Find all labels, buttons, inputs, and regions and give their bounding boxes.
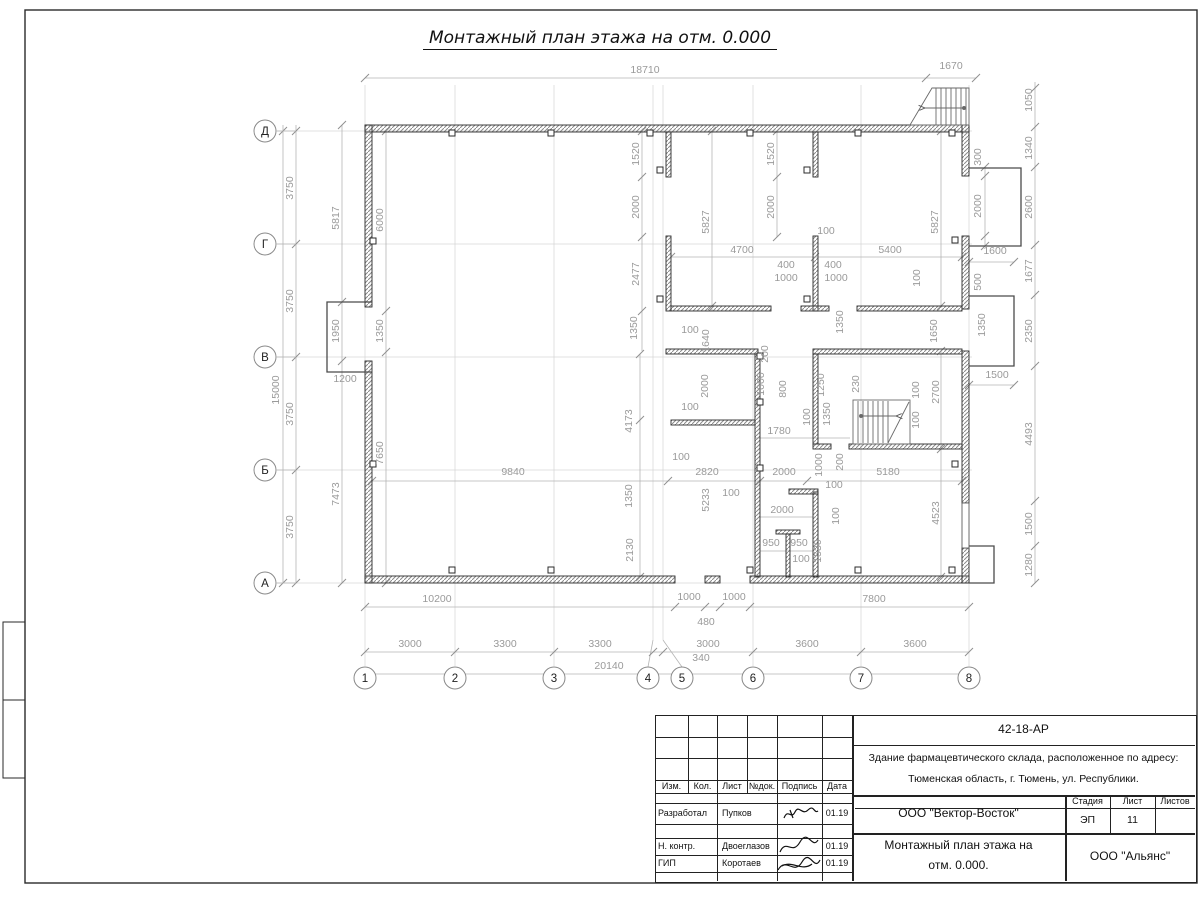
- row-axis-label: Д: [261, 126, 269, 138]
- signature-ncontrol-gip: [772, 836, 824, 880]
- dim-label: 5817: [330, 206, 342, 230]
- customer-company: ООО "Альянс": [1065, 833, 1195, 881]
- row-axis-label: Б: [261, 465, 269, 477]
- dim-label: 100: [681, 401, 699, 413]
- document-code: 42-18-АР: [852, 715, 1195, 745]
- internal-stair: [853, 400, 910, 444]
- dim-label: 480: [697, 616, 715, 628]
- name-gip: Коротаев: [719, 855, 779, 872]
- dim-label: 7650: [374, 441, 386, 465]
- dim-label: 100: [681, 324, 699, 336]
- dim-label: 1000: [677, 591, 701, 603]
- drawing-name-line1: Монтажный план этажа на: [852, 836, 1065, 856]
- role-developer: Разработал: [655, 803, 720, 824]
- dim-label: 2820: [695, 466, 719, 478]
- dim-label: 340: [692, 652, 710, 664]
- drawing-sheet: 1871016701050134026001677235044931500128…: [0, 0, 1200, 900]
- dim-label: 800: [777, 380, 789, 398]
- dim-label: 1000: [824, 272, 848, 284]
- col-header-kol: Кол.: [688, 780, 717, 793]
- dim-label: 100: [825, 479, 843, 491]
- dim-label: 400: [824, 259, 842, 271]
- dim-label: 1350: [374, 319, 386, 343]
- object-description-line2: Тюменская область, г. Тюмень, ул. Респуб…: [852, 768, 1195, 790]
- dim-label: 3300: [588, 638, 612, 650]
- dim-label: 4523: [930, 501, 942, 525]
- date-ncontrol: 01.19: [822, 838, 852, 855]
- dim-label: 5180: [876, 466, 900, 478]
- dim-label: 1500: [985, 369, 1009, 381]
- dim-label: 2700: [930, 380, 942, 404]
- dim-label: 1000: [722, 591, 746, 603]
- row-axis-label: А: [261, 578, 269, 590]
- dim-label: 18710: [630, 64, 659, 76]
- col-header-ndok: №док.: [747, 780, 777, 793]
- date-developer: 01.19: [822, 803, 852, 824]
- col-axis-label: 5: [679, 673, 685, 685]
- dim-label: 1670: [939, 60, 963, 72]
- col-header-data: Дата: [822, 780, 852, 793]
- row-axis-label: Г: [262, 239, 269, 251]
- dim-label: 100: [792, 553, 810, 565]
- dim-label: 950: [790, 537, 808, 549]
- col-axis-label: 2: [452, 673, 458, 685]
- stage-label: Стадия: [1065, 795, 1110, 808]
- dim-label: 3600: [795, 638, 819, 650]
- dim-label: 1340: [1023, 136, 1035, 160]
- dim-label: 950: [762, 537, 780, 549]
- dim-label: 2000: [770, 504, 794, 516]
- dim-label: 100: [722, 487, 740, 499]
- dim-label: 1200: [333, 373, 357, 385]
- dim-label: 1520: [765, 142, 777, 166]
- dim-label: 3750: [284, 176, 296, 200]
- sheets-value: [1155, 808, 1195, 833]
- external-stair: [910, 88, 969, 125]
- sheets-label: Листов: [1155, 795, 1195, 808]
- dim-label: 100: [672, 451, 690, 463]
- dim-label: 1600: [983, 245, 1007, 257]
- dim-label: 1350: [623, 484, 635, 508]
- dim-label: 2000: [772, 466, 796, 478]
- dim-label: 20140: [594, 660, 623, 672]
- role-gip: ГИП: [655, 855, 720, 872]
- col-axis-label: 1: [362, 673, 368, 685]
- dim-label: 6000: [374, 208, 386, 232]
- dim-label: 200: [834, 453, 846, 471]
- dim-label: 1050: [1023, 88, 1035, 112]
- dim-label: 1000: [813, 453, 825, 477]
- sheet-label: Лист: [1110, 795, 1155, 808]
- object-description-line1: Здание фармацевтического склада, располо…: [852, 747, 1195, 769]
- dim-label: 1350: [976, 313, 988, 337]
- dim-label: 2350: [1023, 319, 1035, 343]
- name-ncontrol: Двоеглазов: [719, 838, 779, 855]
- dim-label: 1350: [628, 316, 640, 340]
- dim-label: 100: [801, 408, 813, 426]
- design-org: ООО "Вектор-Восток": [852, 795, 1065, 833]
- role-ncontrol: Н. контр.: [655, 838, 720, 855]
- dimension-ticks: [279, 74, 1039, 678]
- dim-label: 2000: [972, 194, 984, 218]
- dim-label: 2000: [765, 195, 777, 219]
- col-axis-label: 8: [966, 673, 972, 685]
- col-header-podpis: Подпись: [777, 780, 822, 793]
- dim-label: 9840: [501, 466, 525, 478]
- dim-label: 1780: [767, 425, 791, 437]
- dim-label: 100: [910, 381, 922, 399]
- dim-label: 1000: [774, 272, 798, 284]
- dim-label: 3750: [284, 402, 296, 426]
- dim-label: 7800: [862, 593, 886, 605]
- col-axis-label: 3: [551, 673, 557, 685]
- dim-label: 3000: [696, 638, 720, 650]
- stage-value: ЭП: [1065, 808, 1110, 833]
- dim-label: 5400: [878, 244, 902, 256]
- dim-label: 500: [972, 273, 984, 291]
- dim-label: 2000: [630, 195, 642, 219]
- col-header-izm: Изм.: [655, 780, 688, 793]
- dim-label: 1530: [812, 539, 824, 563]
- name-developer: Пупков: [719, 803, 779, 824]
- dim-label: 100: [830, 507, 842, 525]
- col-axis-label: 7: [858, 673, 864, 685]
- porch-bottom-right: [969, 546, 994, 583]
- sheet-value: 11: [1110, 808, 1155, 833]
- dim-label: 200: [759, 345, 771, 363]
- dim-label: 2477: [630, 262, 642, 286]
- date-gip: 01.19: [822, 855, 852, 872]
- col-header-list: Лист: [717, 780, 747, 793]
- margin-stamp-boxes: [3, 622, 25, 778]
- row-axis-label: В: [261, 352, 269, 364]
- dim-label: 1950: [330, 319, 342, 343]
- dim-label: 230: [850, 375, 862, 393]
- dim-label: 1000: [755, 372, 767, 396]
- dim-label: 7473: [330, 482, 342, 506]
- dim-label: 1280: [1023, 553, 1035, 577]
- drawing-title: Монтажный план этажа на отм. 0.000: [0, 28, 1200, 48]
- dim-label: 4173: [623, 409, 635, 433]
- dim-label: 2600: [1023, 195, 1035, 219]
- dim-label: 300: [972, 148, 984, 166]
- col-axis-label: 6: [750, 673, 756, 685]
- dim-label: 5827: [700, 210, 712, 234]
- window-right: [962, 503, 969, 548]
- dim-label: 3750: [284, 289, 296, 313]
- dim-label: 3600: [903, 638, 927, 650]
- porch-outlines: [327, 168, 1021, 583]
- dim-label: 15000: [270, 375, 282, 404]
- dim-label: 1350: [834, 310, 846, 334]
- dim-label: 100: [817, 225, 835, 237]
- dim-label: 1250: [815, 373, 827, 397]
- dim-label: 10200: [422, 593, 451, 605]
- dim-label: 1677: [1023, 259, 1035, 283]
- dim-label: 3000: [398, 638, 422, 650]
- dim-label: 2130: [624, 538, 636, 562]
- signature-developer: [778, 804, 822, 824]
- dim-label: 5233: [700, 488, 712, 512]
- dim-label: 100: [910, 411, 922, 429]
- dim-label: 1650: [928, 319, 940, 343]
- dim-label: 1520: [630, 142, 642, 166]
- dim-label: 400: [777, 259, 795, 271]
- dim-label: 5827: [929, 210, 941, 234]
- dim-label: 3750: [284, 515, 296, 539]
- dim-label: 1350: [821, 402, 833, 426]
- dim-label: 1500: [1023, 512, 1035, 536]
- dim-label: 3300: [493, 638, 517, 650]
- dim-label: 4700: [730, 244, 754, 256]
- walls: [365, 125, 969, 583]
- dim-label: 1640: [700, 329, 712, 353]
- col-axis-label: 4: [645, 673, 652, 685]
- dim-label: 4493: [1023, 422, 1035, 446]
- dim-label: 2000: [699, 374, 711, 398]
- drawing-name-line2: отм. 0.000.: [852, 856, 1065, 876]
- dim-label: 100: [911, 269, 923, 287]
